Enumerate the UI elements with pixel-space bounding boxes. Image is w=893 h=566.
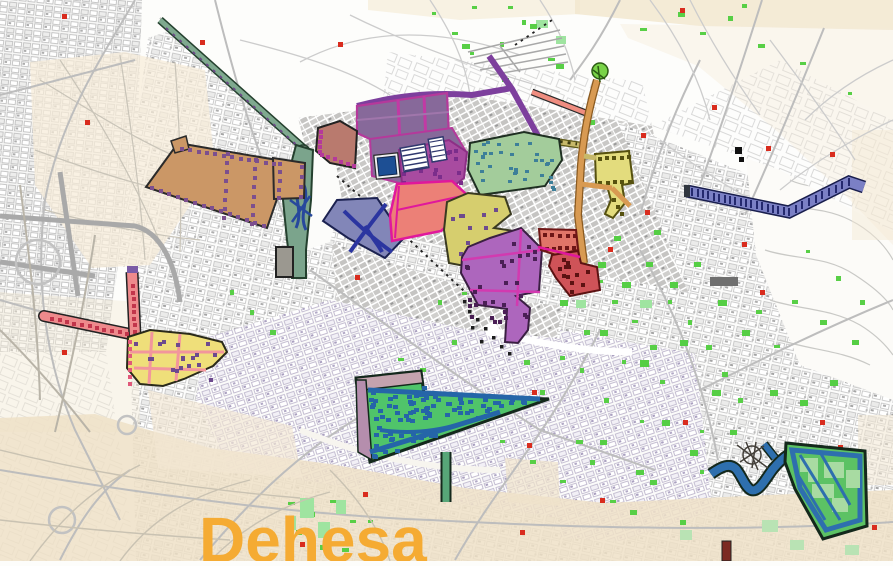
svg-text:Dehesa: Dehesa bbox=[199, 504, 427, 561]
